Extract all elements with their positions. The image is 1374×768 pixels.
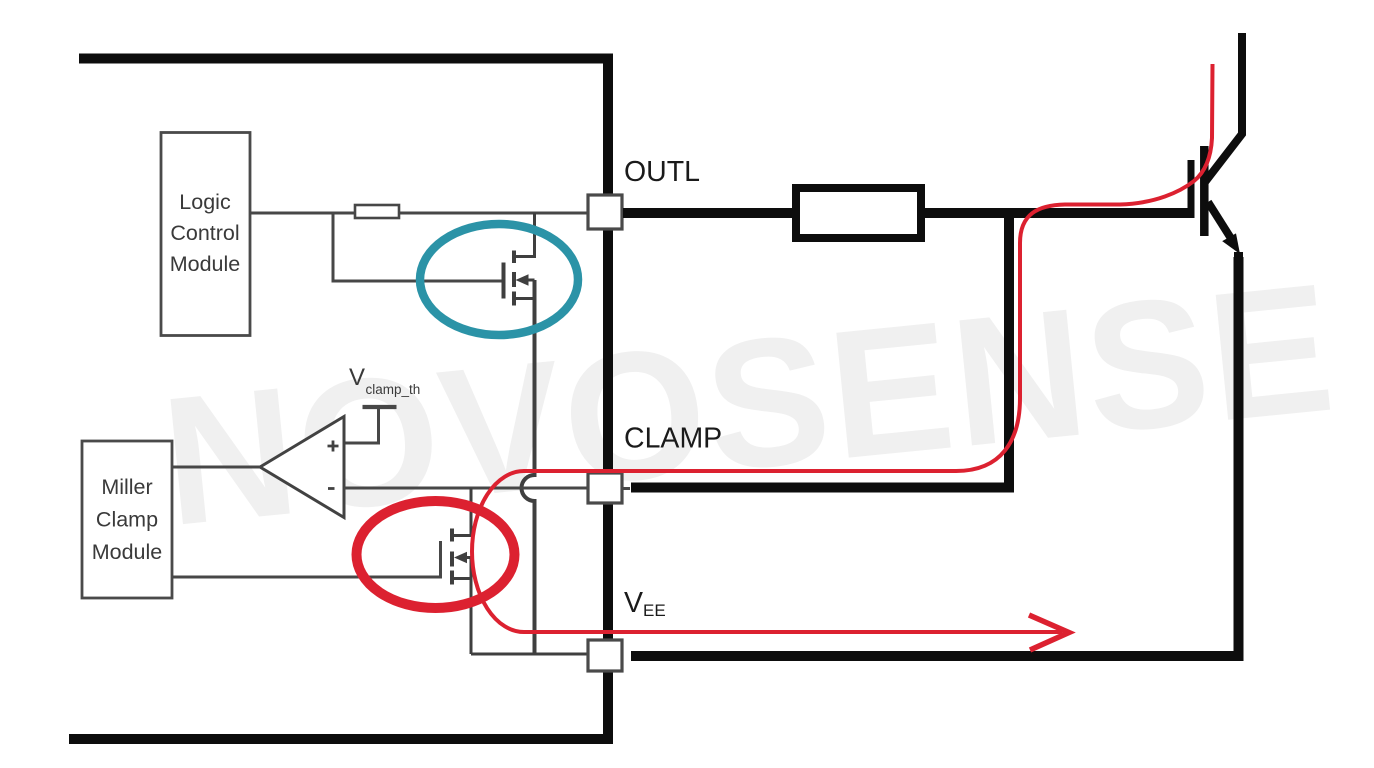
svg-text:Control: Control xyxy=(170,221,239,245)
svg-text:CLAMP: CLAMP xyxy=(624,423,722,455)
svg-text:V: V xyxy=(624,587,643,619)
svg-text:EE: EE xyxy=(643,601,666,620)
svg-text:V: V xyxy=(349,364,365,391)
svg-text:Module: Module xyxy=(170,252,241,276)
svg-text:Logic: Logic xyxy=(179,190,231,214)
svg-text:Module: Module xyxy=(92,540,163,564)
svg-text:Clamp: Clamp xyxy=(96,508,158,532)
svg-text:Miller: Miller xyxy=(101,475,152,499)
svg-text:clamp_th: clamp_th xyxy=(366,382,421,397)
svg-text:OUTL: OUTL xyxy=(624,156,700,188)
